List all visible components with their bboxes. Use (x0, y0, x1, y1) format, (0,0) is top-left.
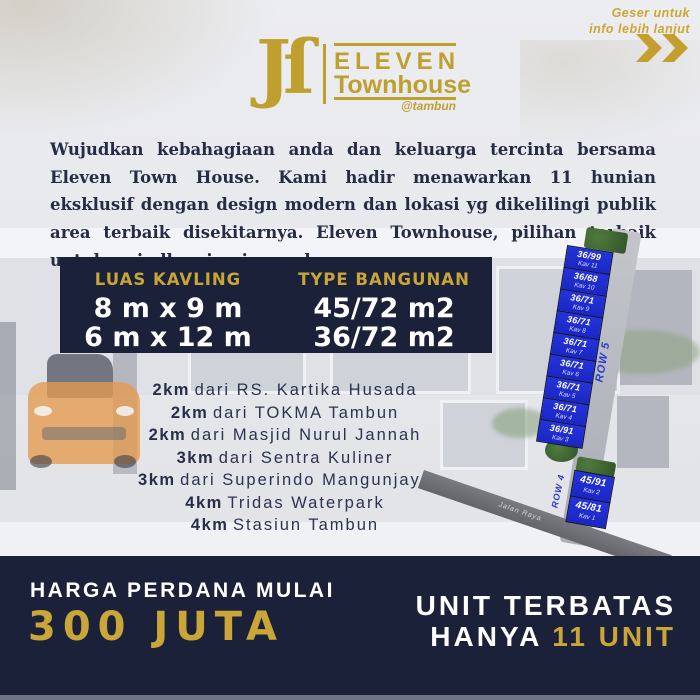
distance-km: 2km (152, 381, 190, 399)
distance-place: Stasiun Tambun (233, 516, 379, 534)
swipe-hint-line1: Geser untuk (589, 5, 690, 21)
plot-kav: Kav 5 (558, 390, 576, 400)
distance-km: 3km (177, 449, 215, 467)
background-tree-branches (0, 0, 280, 140)
logo-handle: @tambun (334, 99, 456, 113)
plot-kav: Kav 8 (569, 325, 587, 335)
distance-item: 2km dari TOKMA Tambun (60, 402, 510, 425)
luas-value-2: 6 m x 12 m (60, 324, 276, 353)
price-label: HARGA PERDANA MULAI (30, 579, 335, 603)
units-hanya: HANYA (430, 621, 542, 652)
logo-mark-icon: Jſ (256, 28, 307, 108)
swipe-hint-text: Geser untuk info lebih lanjut (589, 5, 690, 37)
car-wheel (30, 455, 52, 468)
specs-luas-column: LUAS KAVLING 8 m x 9 m 6 m x 12 m (60, 257, 276, 353)
distance-place: dari Sentra Kuliner (219, 449, 394, 467)
distance-km: 4km (191, 516, 229, 534)
logo-divider (323, 44, 326, 104)
distance-place: dari RS. Kartika Husada (195, 381, 418, 399)
distance-place: dari Superindo Mangunjaya (180, 471, 432, 489)
plot-kav: Kav 1 (578, 513, 596, 523)
plot-kav: Kav 2 (583, 487, 601, 497)
units-block: UNIT TERBATAS HANYA11 UNIT (416, 591, 676, 653)
background-pillar (0, 322, 16, 490)
specs-box: LUAS KAVLING 8 m x 9 m 6 m x 12 m TYPE B… (60, 257, 492, 353)
price-value: 300 JUTA (28, 604, 284, 650)
plot-kav: Kav 9 (572, 303, 590, 313)
distance-km: 2km (171, 404, 209, 422)
car-headlight (34, 406, 52, 416)
plot-kav: Kav 7 (565, 347, 583, 357)
swipe-chevrons-icon[interactable] (636, 34, 690, 67)
distance-km: 4km (185, 494, 223, 512)
luas-kavling-title: LUAS KAVLING (60, 270, 276, 289)
distance-list: 2km dari RS. Kartika Husada 2km dari TOK… (60, 379, 510, 537)
distance-place: dari TOKMA Tambun (213, 404, 399, 422)
distance-item: 3km dari Sentra Kuliner (60, 447, 510, 470)
type-bangunan-title: TYPE BANGUNAN (276, 270, 492, 289)
type-bangunan-values: 45/72 m2 36/72 m2 (276, 295, 492, 353)
distance-item: 2km dari RS. Kartika Husada (60, 379, 510, 402)
background-window (617, 396, 669, 468)
plot-kav: Kav 3 (552, 434, 570, 444)
logo-subname: Townhouse (334, 71, 458, 100)
plot-kav: Kav 4 (555, 412, 573, 422)
luas-value-1: 8 m x 9 m (60, 295, 276, 324)
distance-km: 2km (149, 426, 187, 444)
plot-kav: Kav 6 (562, 369, 580, 379)
type-value-2: 36/72 m2 (276, 324, 492, 353)
distance-item: 2km dari Masjid Nurul Jannah (60, 424, 510, 447)
units-count: 11 UNIT (552, 621, 676, 652)
units-line2: HANYA11 UNIT (416, 621, 676, 653)
distance-km: 3km (138, 471, 176, 489)
units-line1: UNIT TERBATAS (416, 591, 676, 621)
logo-rule-top (334, 43, 456, 46)
specs-type-column: TYPE BANGUNAN 45/72 m2 36/72 m2 (276, 257, 492, 353)
luas-kavling-values: 8 m x 9 m 6 m x 12 m (60, 295, 276, 353)
footer-bottom-edge (0, 695, 700, 700)
distance-item: 4km Stasiun Tambun (60, 514, 510, 537)
type-value-1: 45/72 m2 (276, 295, 492, 324)
distance-place: dari Masjid Nurul Jannah (191, 426, 422, 444)
flyer: Geser untuk info lebih lanjut Jſ ELEVEN … (0, 0, 700, 700)
distance-place: Tridas Waterpark (227, 494, 384, 512)
